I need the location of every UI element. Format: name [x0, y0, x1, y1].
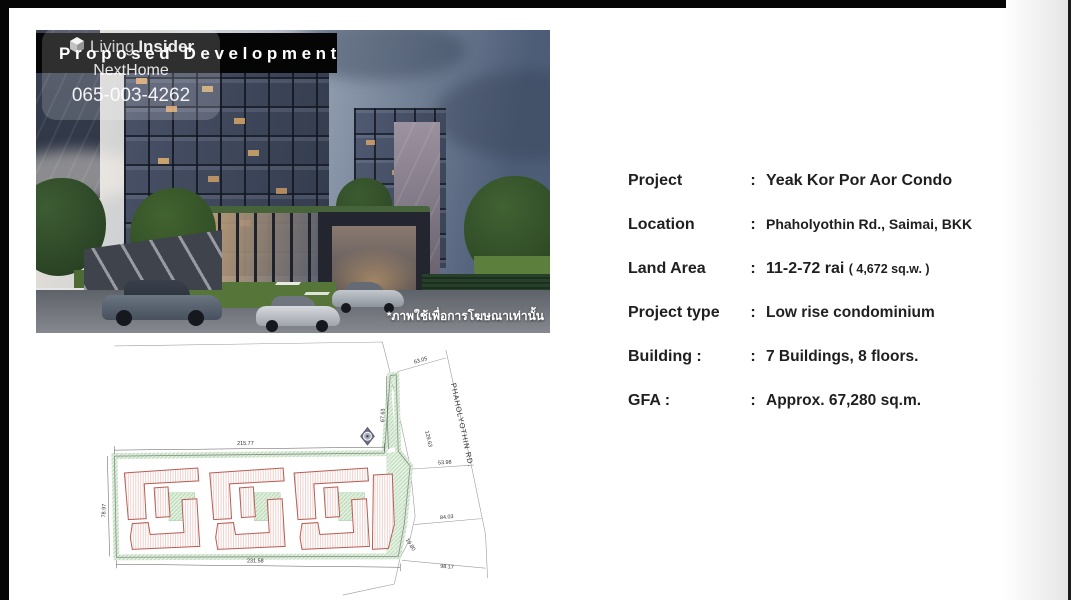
watermark-box: LivingInsider NextHome 065-003-4262 — [42, 28, 220, 120]
building-cluster-3 — [294, 468, 369, 549]
watermark-phone: 065-003-4262 — [72, 83, 190, 109]
detail-row-gfa: GFA : : Approx. 67,280 sq.m. — [628, 392, 1038, 410]
detail-colon: : — [740, 304, 766, 322]
dimension-label: 53.98 — [438, 460, 452, 467]
dimension-label: 67.63 — [380, 408, 386, 422]
detail-value: Approx. 67,280 sq.m. — [766, 392, 1038, 410]
slide-title: Proposed Development — [59, 44, 341, 64]
detail-label: Location — [628, 216, 740, 234]
detail-label: Project — [628, 172, 740, 190]
detail-row-project-type: Project type : Low rise condominium — [628, 304, 1038, 322]
car-gray-sedan — [102, 280, 222, 326]
presentation-slide: *ภาพใช้เพื่อการโฆษณาเท่านั้น LivingInsid… — [0, 0, 1071, 600]
top-border-strip — [0, 0, 1006, 8]
detail-row-land-area: Land Area : 11-2-72 rai ( 4,672 sq.w. ) — [628, 260, 1038, 278]
detail-label: Building : — [628, 348, 740, 366]
left-border-strip — [0, 0, 9, 600]
dimension-label: 98.17 — [440, 564, 454, 571]
detail-colon: : — [740, 260, 766, 278]
land-area-sqw: ( 4,672 sq.w. ) — [849, 262, 930, 276]
detail-label: Land Area — [628, 260, 740, 278]
detail-value: 11-2-72 rai ( 4,672 sq.w. ) — [766, 260, 1038, 278]
land-area-main: 11-2-72 rai — [766, 260, 844, 277]
lit-windows — [366, 140, 375, 145]
detail-colon: : — [740, 172, 766, 190]
dimension-label: 19.80 — [404, 538, 416, 553]
detail-colon: : — [740, 348, 766, 366]
detail-label: Project type — [628, 304, 740, 322]
cloud — [436, 70, 550, 160]
car-white — [256, 296, 340, 332]
dimension-label: 231.58 — [247, 558, 264, 564]
parking-markings — [275, 282, 301, 285]
road-name-label: PHAHOLYOTHIN RD. — [449, 382, 476, 468]
dimension-label: 78.97 — [101, 504, 107, 518]
detail-row-building: Building : : 7 Buildings, 8 floors. — [628, 348, 1038, 366]
detail-value: 7 Buildings, 8 floors. — [766, 348, 1038, 366]
detail-row-location: Location : Phaholyothin Rd., Saimai, BKK — [628, 216, 1038, 234]
detail-value: Phaholyothin Rd., Saimai, BKK — [766, 216, 1038, 232]
detail-row-project: Project : Yeak Kor Por Aor Condo — [628, 172, 1038, 190]
north-compass-icon — [361, 427, 375, 445]
detail-value: Yeak Kor Por Aor Condo — [766, 172, 1038, 190]
project-details: Project : Yeak Kor Por Aor Condo Locatio… — [628, 172, 1038, 436]
dimension-label: 84.03 — [440, 514, 454, 521]
dimension-label: 215.77 — [237, 441, 254, 447]
detail-colon: : — [740, 216, 766, 234]
building-cluster-4 — [372, 474, 394, 549]
site-plan: 215.77 231.58 78.97 67.63 63.05 129.63 5… — [95, 340, 505, 598]
detail-colon: : — [740, 392, 766, 410]
dimension-label: 63.05 — [413, 356, 428, 366]
dimension-label: 129.63 — [423, 430, 433, 448]
building-cluster-2 — [210, 468, 285, 549]
detail-value: Low rise condominium — [766, 304, 1038, 322]
advertising-disclaimer-thai: *ภาพใช้เพื่อการโฆษณาเท่านั้น — [387, 307, 544, 326]
building-cluster-1 — [124, 468, 199, 549]
detail-label: GFA : — [628, 392, 740, 410]
